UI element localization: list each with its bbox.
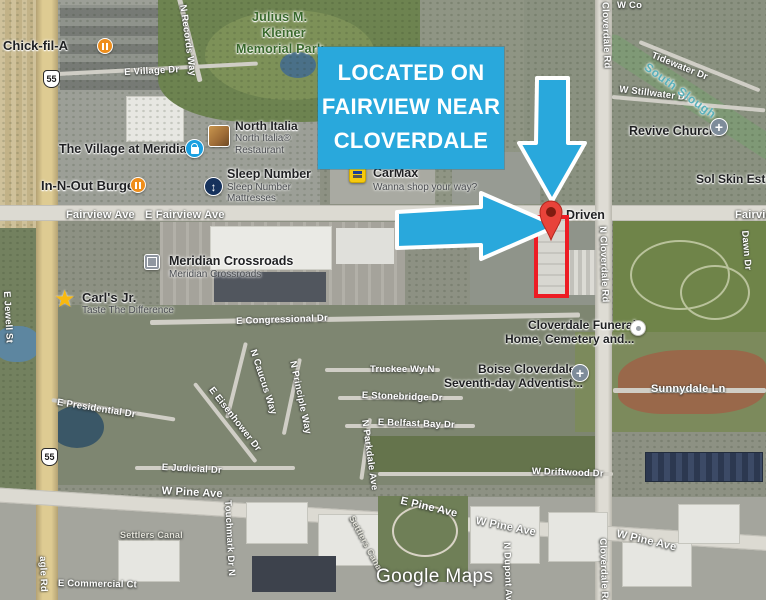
- annotated-map-screenshot: E Village DrN Records WayFairview AveE F…: [0, 0, 766, 600]
- cemetery-brown-field: [618, 350, 766, 414]
- shopping-center-icon: [144, 254, 160, 270]
- chick-fil-a-label: Chick-fil-A: [3, 38, 68, 53]
- restaurant-icon: [97, 38, 113, 54]
- warehouse-strip: [566, 250, 596, 295]
- eagle-rd-label: agle Rd: [37, 556, 49, 592]
- road-label: W Co: [617, 0, 642, 11]
- target-property-building: [537, 218, 566, 296]
- road-label: N Dupont Ave: [501, 542, 514, 600]
- revive-church-label: Revive Church: [629, 124, 717, 138]
- photo-thumbnail-icon: [208, 125, 230, 147]
- park-label: Julius M.: [252, 10, 307, 24]
- north-italia-subtitle: Restaurant: [235, 145, 284, 156]
- church-icon: +: [571, 364, 589, 382]
- callout-line: CLOVERDALE: [318, 124, 504, 158]
- road-label: Fairview Ave: [66, 209, 135, 221]
- crossroads-roof: [336, 228, 394, 264]
- carmax-subtitle: Wanna shop your way?: [373, 182, 477, 193]
- park-label: Memorial Park: [236, 42, 324, 56]
- callout-box: LOCATED ON FAIRVIEW NEAR CLOVERDALE: [318, 47, 504, 169]
- church-icon: +: [710, 118, 728, 136]
- north-italia-subtitle: North Italia®: [235, 133, 291, 144]
- solar-array: [645, 452, 763, 482]
- warehouse-roof: [678, 504, 740, 544]
- sleep-number-subtitle: Mattresses: [227, 193, 276, 204]
- driven-label: Driven: [566, 208, 605, 222]
- highway-55-shield: 55: [43, 70, 60, 88]
- meridian-crossroads-subtitle: Meridian Crossroads: [169, 269, 261, 280]
- google-maps-watermark: Google Maps: [376, 566, 493, 588]
- cloverdale-funeral-home-label: Cloverdale Funeral: [528, 318, 636, 332]
- boise-cloverdale-adventist-label: Seventh-day Adventist...: [444, 376, 583, 390]
- park-path: [680, 265, 750, 320]
- road-label: Truckee Wy N: [370, 364, 435, 375]
- shopping-icon: [185, 139, 204, 158]
- sleep-number-subtitle: Sleep Number: [227, 182, 291, 193]
- warehouse-roof: [246, 502, 308, 544]
- meridian-crossroads-label: Meridian Crossroads: [169, 254, 293, 268]
- road-label: Fairview: [735, 209, 766, 221]
- park-label: Kleiner: [262, 26, 306, 40]
- dark-roof: [252, 556, 336, 592]
- in-n-out-burger-label: In-N-Out Burger: [41, 178, 139, 193]
- road-label: E Commercial Ct: [58, 578, 137, 590]
- sleep-number-icon: ↕: [204, 177, 223, 196]
- carls-jr-subtitle: Taste The Difference: [82, 305, 174, 316]
- road-label: N Cloverdale Rd: [599, 0, 613, 69]
- canal-label: Settlers Canal: [120, 530, 183, 540]
- the-village-at-meridian-label: The Village at Meridian: [59, 142, 194, 156]
- road-label: Sunnydale Ln: [651, 383, 726, 395]
- restaurant-icon: [130, 177, 146, 193]
- poi-dot-icon: [630, 320, 646, 336]
- sleep-number-label: Sleep Number: [227, 167, 311, 181]
- star-icon: ★: [54, 285, 76, 314]
- north-italia-label: North Italia: [235, 119, 298, 133]
- highway-55-shield: 55: [41, 448, 58, 466]
- road-label: Cloverdale Rd: [597, 538, 610, 600]
- boise-cloverdale-adventist-label: Boise Cloverdale: [478, 362, 575, 376]
- carls-jr-label: Carl's Jr.: [82, 290, 136, 305]
- road-label: E Fairview Ave: [145, 209, 225, 221]
- cloverdale-funeral-home-label: Home, Cemetery and...: [505, 332, 634, 346]
- callout-line: LOCATED ON: [318, 56, 504, 90]
- callout-line: FAIRVIEW NEAR: [318, 90, 504, 124]
- warehouse-roof: [118, 540, 180, 582]
- sol-skin-label: Sol Skin Esthe: [696, 172, 766, 186]
